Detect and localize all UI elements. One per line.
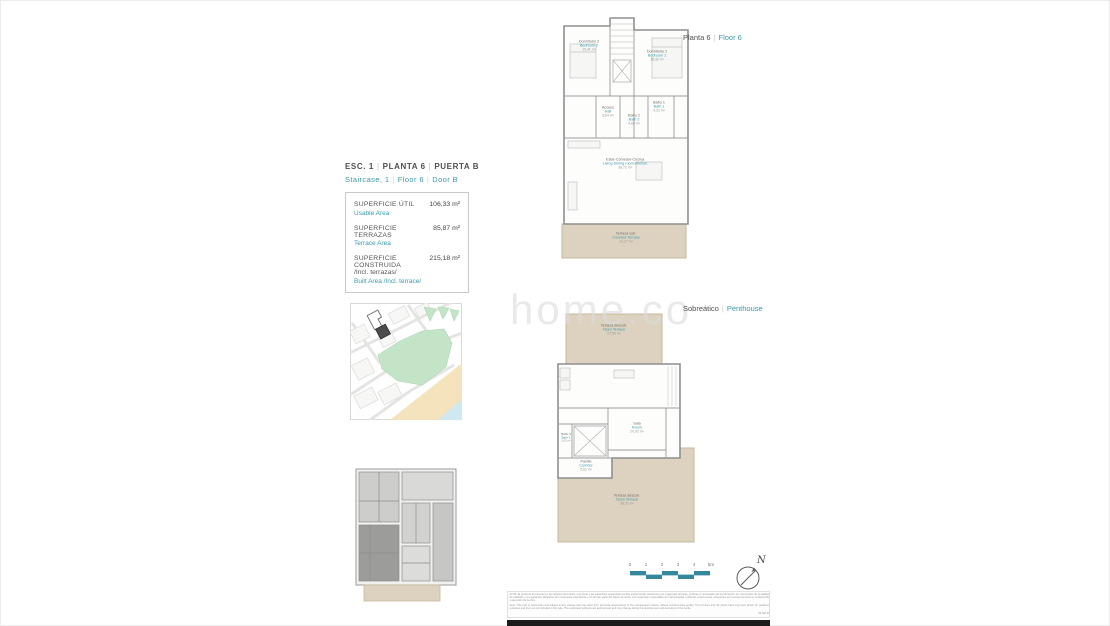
footer-bar [507, 620, 770, 626]
room-label-open-terrace-top: Terraza descub.Open Terrace27,56 m² [601, 324, 627, 336]
room-label-bedroom1: Dormitorio 1Bedroom 118,30 m² [647, 50, 667, 62]
floor-plan-upper: Dormitorio 2Bedroom 215,41 m² Dormitorio… [556, 14, 692, 260]
table-row-built: SUPERFICIE CONSTRUIDA215,18 m² /Incl. te… [354, 255, 460, 285]
plan-sheet: ESC. 1|PLANTA 6|PUERTA B Staircase, 1|Fl… [0, 0, 1110, 626]
upper-plan-title: Planta 6|Floor 6 [683, 33, 742, 42]
key-plan-terrace [364, 585, 440, 601]
disclaimer-en: Note: This plan is preliminary and subje… [510, 604, 770, 610]
room-label-sala: SalaRoom20,92 m² [630, 422, 643, 434]
room-label-hall: AccesoHall6,64 m² [602, 106, 614, 118]
key-plan [350, 465, 462, 608]
site-map [350, 303, 462, 420]
planta-label: PLANTA 6 [383, 162, 426, 171]
page-title: ESC. 1|PLANTA 6|PUERTA B [345, 162, 479, 171]
scale-bar: 0 1 2 3 4 5m [628, 562, 720, 582]
room-label-corridor: PasilloCorridor5,81 m² [579, 460, 592, 472]
page-subtitle: Staircase, 1|Floor 6|Door B [345, 175, 458, 184]
room-label-bath3: Baño 3Bath 33,05 m² [561, 433, 571, 443]
room-label-bedroom2: Dormitorio 2Bedroom 215,41 m² [579, 40, 599, 52]
scale-bar-segments [628, 569, 720, 581]
table-row-usable: SUPERFICIE ÚTIL106,33 m² Usable Area [354, 201, 460, 217]
svg-text:N: N [756, 555, 767, 566]
open-terrace-top-area [566, 314, 662, 364]
room-label-covered-terrace: Terraza cub.Covered Terrace19,27 m² [612, 232, 639, 244]
disclaimer-es: NOTA: El presente documento es de caráct… [510, 593, 770, 602]
room-label-bath1: Baño 1Bath 14,32 m² [653, 101, 665, 113]
room-label-living: Estar-Comedor-CocinaLiving-Dining room-K… [603, 158, 648, 170]
room-label-bath2: Baño 2Bath 24,60 m² [628, 114, 640, 126]
terrace-area-value: 85,87 m² [433, 225, 460, 232]
usable-area-value: 106,33 m² [429, 201, 460, 208]
area-table: SUPERFICIE ÚTIL106,33 m² Usable Area SUP… [345, 192, 469, 293]
esc-label: ESC. 1 [345, 162, 374, 171]
floor-plan-lower: Terraza descub.Open Terrace27,56 m² Sala… [556, 308, 696, 548]
table-row-terrace: SUPERFICIE TERRAZAS85,87 m² Terrace Area [354, 225, 460, 248]
room-label-open-terrace-bottom: Terraza descub.Open Terrace38,32 m² [614, 494, 640, 506]
lower-plan-title: Sobreático|Penthouse [683, 304, 763, 313]
built-area-value: 215,18 m² [429, 255, 460, 262]
disclaimer-date: 01.feb.24 [510, 612, 770, 615]
disclaimer: NOTA: El presente documento es de caráct… [507, 591, 770, 618]
puerta-label: PUERTA B [434, 162, 479, 171]
